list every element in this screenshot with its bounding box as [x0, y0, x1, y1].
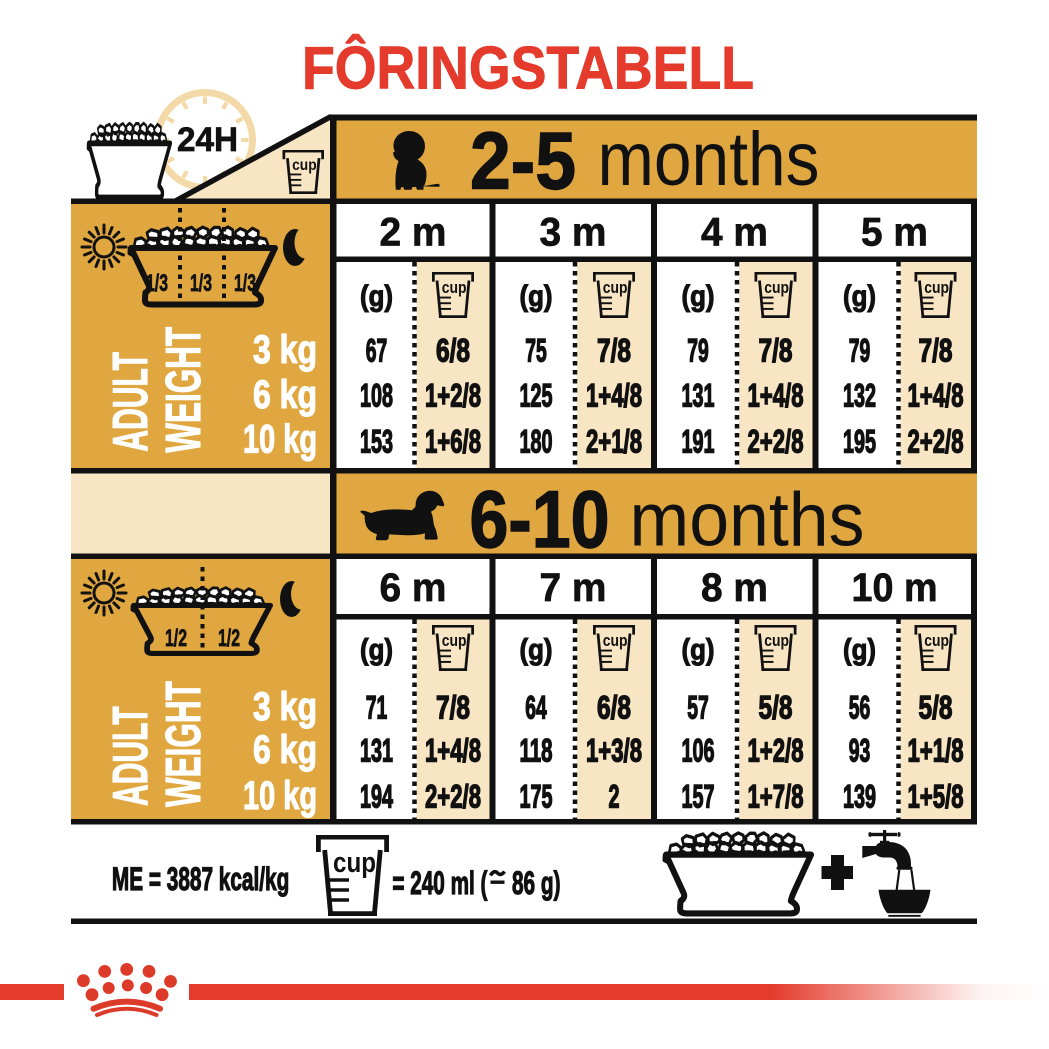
svg-text:2+2/8: 2+2/8: [748, 423, 804, 459]
svg-text:10 kg: 10 kg: [243, 774, 317, 818]
svg-text:56: 56: [849, 689, 871, 725]
svg-text:1+4/8: 1+4/8: [908, 377, 964, 413]
svg-text:7/8: 7/8: [759, 332, 793, 368]
svg-text:1/3: 1/3: [146, 270, 168, 297]
svg-text:7/8: 7/8: [436, 689, 470, 725]
svg-text:2: 2: [609, 779, 620, 815]
svg-text:5 m: 5 m: [861, 211, 928, 255]
svg-text:118: 118: [520, 732, 553, 768]
svg-text:86 g): 86 g): [512, 865, 561, 901]
svg-text:2+2/8: 2+2/8: [425, 779, 481, 815]
svg-text:1/2: 1/2: [165, 625, 187, 652]
svg-text:6/8: 6/8: [597, 689, 631, 725]
svg-text:64: 64: [525, 689, 547, 725]
svg-text:10 m: 10 m: [852, 566, 938, 610]
svg-text:132: 132: [843, 377, 876, 413]
svg-text:195: 195: [843, 423, 876, 459]
svg-text:5/8: 5/8: [759, 689, 793, 725]
svg-text:4 m: 4 m: [701, 211, 768, 255]
svg-text:(g): (g): [360, 634, 393, 667]
svg-text:3 kg: 3 kg: [253, 685, 317, 729]
svg-text:153: 153: [360, 423, 393, 459]
svg-text:5/8: 5/8: [919, 689, 953, 725]
svg-text:79: 79: [687, 332, 709, 368]
svg-text:8 m: 8 m: [701, 566, 768, 610]
svg-text:1/3: 1/3: [190, 270, 212, 297]
svg-text:1+2/8: 1+2/8: [425, 377, 481, 413]
svg-text:7/8: 7/8: [919, 332, 953, 368]
svg-text:(g): (g): [843, 634, 876, 667]
svg-text:131: 131: [682, 377, 715, 413]
svg-text:FÔRINGSTABELL: FÔRINGSTABELL: [302, 35, 754, 102]
svg-text:ME = 3887 kcal/kg: ME = 3887 kcal/kg: [112, 861, 289, 897]
svg-text:125: 125: [520, 377, 553, 413]
svg-text:1+7/8: 1+7/8: [748, 779, 804, 815]
svg-text:7/8: 7/8: [597, 332, 631, 368]
svg-text:months: months: [630, 478, 865, 563]
svg-text:3 kg: 3 kg: [253, 328, 317, 372]
svg-text:ADULT: ADULT: [104, 352, 158, 452]
svg-text:(g): (g): [682, 280, 715, 313]
svg-text:1+4/8: 1+4/8: [748, 377, 804, 413]
svg-text:108: 108: [360, 377, 393, 413]
svg-text:106: 106: [682, 732, 715, 768]
svg-text:157: 157: [682, 779, 715, 815]
svg-text:131: 131: [360, 732, 393, 768]
svg-text:93: 93: [849, 732, 871, 768]
svg-text:1+4/8: 1+4/8: [586, 377, 642, 413]
svg-text:7 m: 7 m: [540, 566, 607, 610]
svg-text:24H: 24H: [177, 121, 238, 159]
svg-text:175: 175: [520, 779, 553, 815]
svg-text:191: 191: [682, 423, 715, 459]
svg-text:WEIGHT: WEIGHT: [157, 681, 211, 807]
svg-text:2+2/8: 2+2/8: [908, 423, 964, 459]
svg-text:6 kg: 6 kg: [253, 373, 317, 417]
svg-text:2 m: 2 m: [380, 211, 447, 255]
svg-text:6-10: 6-10: [470, 475, 610, 565]
svg-text:6 kg: 6 kg: [253, 728, 317, 772]
svg-text:1+5/8: 1+5/8: [908, 779, 964, 815]
svg-text:6/8: 6/8: [436, 332, 470, 368]
svg-text:ADULT: ADULT: [104, 706, 158, 806]
svg-text:10 kg: 10 kg: [243, 418, 317, 462]
svg-text:2-5: 2-5: [470, 116, 576, 206]
svg-text:1/2: 1/2: [218, 625, 240, 652]
svg-text:1+1/8: 1+1/8: [908, 732, 964, 768]
svg-text:67: 67: [366, 332, 388, 368]
svg-text:1+4/8: 1+4/8: [425, 732, 481, 768]
svg-text:(g): (g): [520, 280, 553, 313]
svg-text:WEIGHT: WEIGHT: [157, 327, 211, 453]
svg-text:1+6/8: 1+6/8: [425, 423, 481, 459]
svg-text:180: 180: [520, 423, 553, 459]
svg-text:= 240 ml (: = 240 ml (: [392, 865, 487, 901]
svg-text:1+3/8: 1+3/8: [586, 732, 642, 768]
svg-text:2+1/8: 2+1/8: [586, 423, 642, 459]
svg-text:139: 139: [843, 779, 876, 815]
svg-text:6 m: 6 m: [380, 566, 447, 610]
svg-text:(g): (g): [843, 280, 876, 313]
svg-text:79: 79: [849, 332, 871, 368]
svg-text:(g): (g): [520, 634, 553, 667]
svg-text:(g): (g): [360, 280, 393, 313]
svg-text:194: 194: [360, 779, 393, 815]
svg-text:75: 75: [525, 332, 547, 368]
svg-text:months: months: [598, 117, 820, 202]
svg-text:57: 57: [687, 689, 709, 725]
svg-text:71: 71: [366, 689, 388, 725]
svg-text:3 m: 3 m: [540, 211, 607, 255]
svg-text:1+2/8: 1+2/8: [748, 732, 804, 768]
svg-text:(g): (g): [682, 634, 715, 667]
svg-text:1/3: 1/3: [234, 270, 256, 297]
